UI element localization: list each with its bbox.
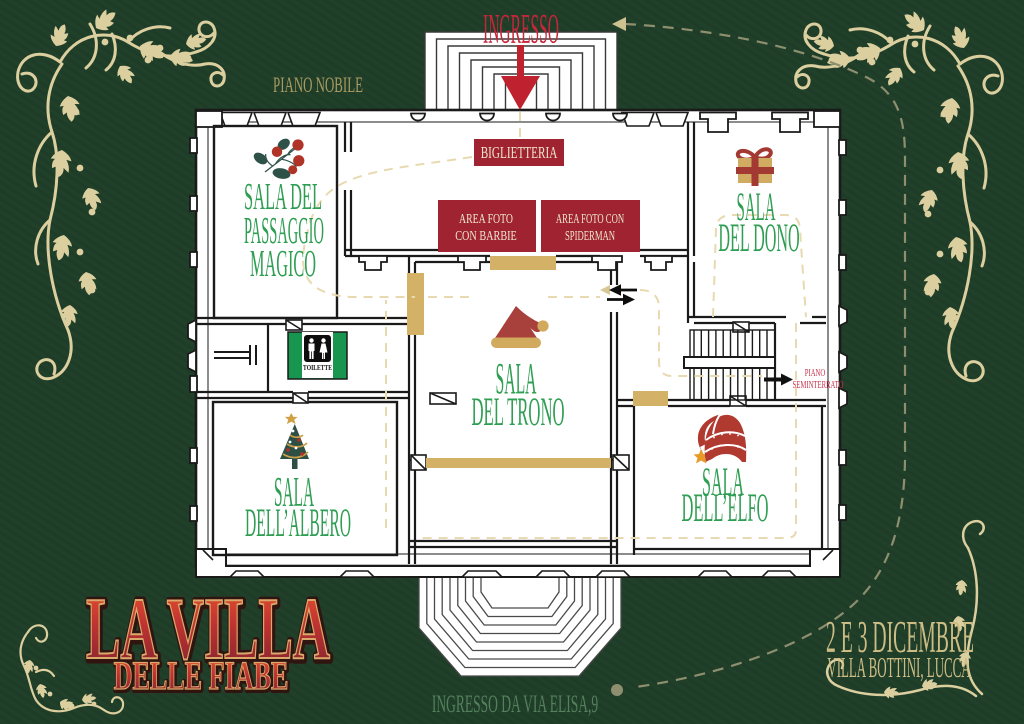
- svg-text:MAGICO: MAGICO: [250, 243, 316, 285]
- svg-text:AREA FOTO: AREA FOTO: [459, 210, 513, 226]
- svg-text:BIGLIETTERIA: BIGLIETTERIA: [481, 144, 558, 163]
- svg-text:INGRESSO DA VIA ELISA,9: INGRESSO DA VIA ELISA,9: [432, 691, 598, 718]
- svg-text:DELLE FIABE: DELLE FIABE: [114, 655, 289, 699]
- svg-text:CON BARBIE: CON BARBIE: [455, 227, 517, 243]
- svg-text:DEL TRONO: DEL TRONO: [471, 390, 564, 434]
- svg-text:SEMINTERRATO: SEMINTERRATO: [793, 378, 844, 390]
- svg-text:DELL’ELFO: DELL’ELFO: [681, 486, 768, 530]
- svg-text:DELL’ALBERO: DELL’ALBERO: [245, 500, 351, 545]
- svg-text:DEL DONO: DEL DONO: [718, 216, 799, 261]
- svg-text:VILLA BOTTINI, LUCCA: VILLA BOTTINI, LUCCA: [827, 651, 971, 683]
- svg-text:PIANO: PIANO: [805, 366, 826, 378]
- svg-text:TOILETTE: TOILETTE: [303, 364, 332, 372]
- svg-text:SPIDERMAN: SPIDERMAN: [565, 228, 616, 244]
- svg-text:PIANO NOBILE: PIANO NOBILE: [273, 72, 363, 96]
- svg-text:AREA FOTO CON: AREA FOTO CON: [556, 211, 625, 227]
